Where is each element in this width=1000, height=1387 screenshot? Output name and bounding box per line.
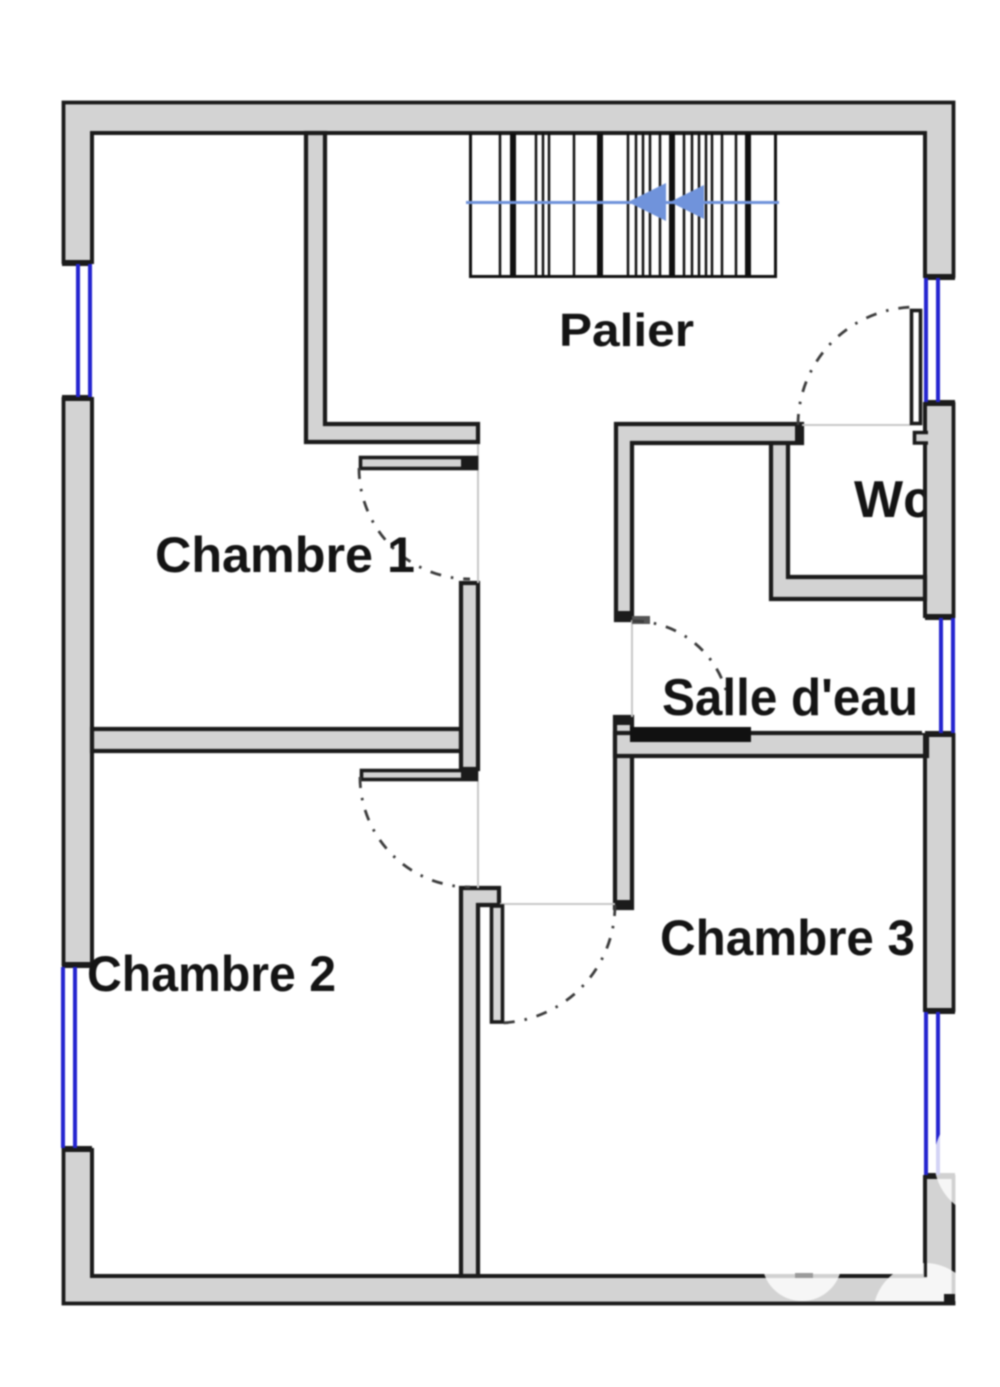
svg-text:Wc: Wc	[854, 471, 932, 529]
svg-text:Chambre 1: Chambre 1	[155, 527, 415, 583]
svg-text:Chambre 3: Chambre 3	[660, 910, 915, 966]
svg-text:Salle d'eau: Salle d'eau	[662, 669, 918, 727]
svg-text:Chambre 2: Chambre 2	[87, 946, 336, 1002]
svg-text:Palier: Palier	[559, 304, 694, 356]
